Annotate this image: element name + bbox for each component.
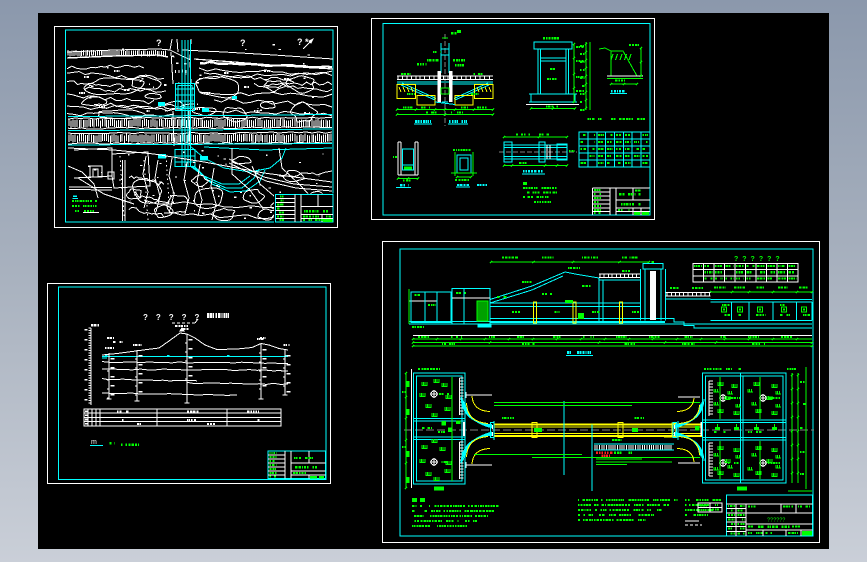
svg-text:m: m [91,439,97,446]
svg-text:?: ? [156,38,162,48]
svg-text:??????: ?????? [767,518,785,524]
svg-text:?????: ????? [143,313,207,322]
svg-text:? *: ? * [297,37,309,47]
svg-text:?: ? [240,38,246,48]
svg-text:??????: ?????? [734,256,784,263]
